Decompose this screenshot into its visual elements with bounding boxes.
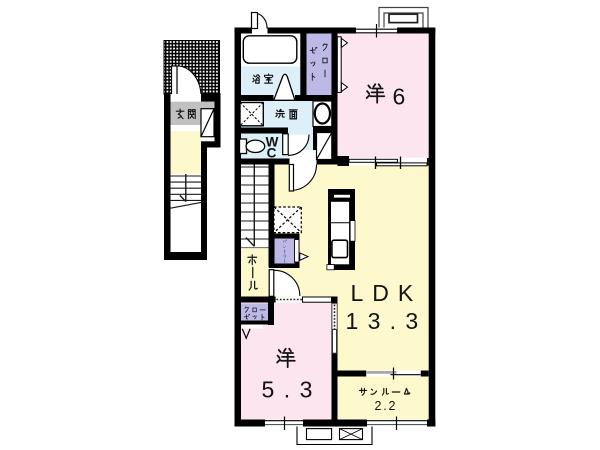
svg-text:C: C — [267, 146, 277, 161]
svg-text:6: 6 — [393, 84, 406, 110]
svg-text:5.3: 5.3 — [262, 377, 322, 403]
svg-text:2.2: 2.2 — [375, 399, 398, 413]
svg-text:13.3: 13.3 — [346, 308, 428, 334]
svg-text:LDK: LDK — [351, 280, 423, 306]
